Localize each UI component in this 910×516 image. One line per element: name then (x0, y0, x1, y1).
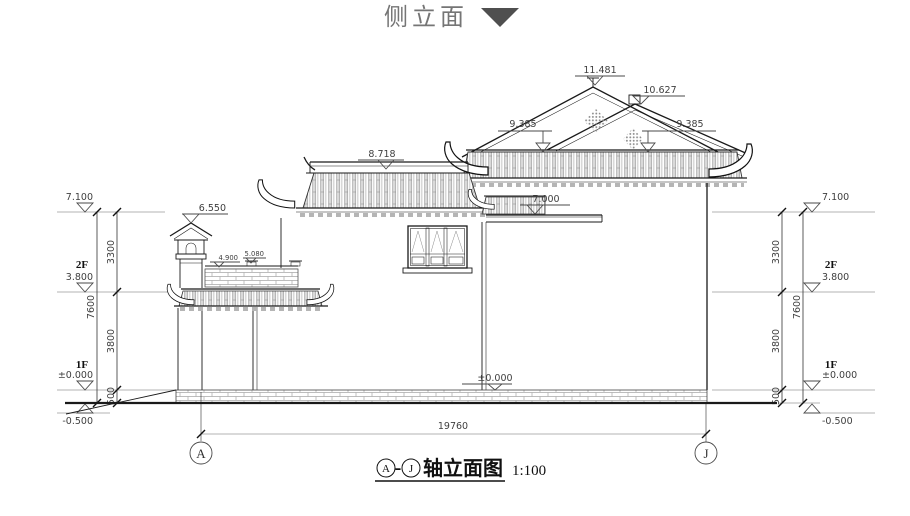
mark-post-cap: 5.080 (245, 250, 264, 258)
left-dimension-stack: 7.100 3.800 ±0.000 -0.500 2F 1F 7600 330… (57, 192, 176, 427)
main-roof-eave (445, 142, 753, 185)
mark-ridge-rear: 10.627 (643, 85, 676, 96)
left-elev-7100: 7.100 (66, 192, 93, 203)
left-floor1-label: 1F (76, 359, 89, 371)
mark-mid-roof: 7.000 (532, 194, 559, 205)
mark-ridge-main: 11.481 (583, 65, 616, 76)
right-dim-3800: 3800 (771, 329, 782, 353)
window-sill (403, 268, 472, 273)
page-title: 侧立面 (384, 3, 468, 31)
railing-brick-band (205, 269, 298, 287)
caption-label: 轴立面图 (423, 456, 503, 480)
left-dim-total: 7600 (86, 295, 97, 319)
left-elev-minus0500: -0.500 (62, 416, 93, 427)
mark-ground-center: ±0.000 (477, 373, 512, 384)
elevation-drawing-page: 侧立面 7.100 3.800 ±0.000 -0.500 2F 1F 7600… (0, 0, 910, 516)
caption-dash: - (395, 457, 402, 479)
drawing-caption: A - J 轴立面图 1:100 (375, 456, 546, 481)
right-elev-7100: 7.100 (822, 192, 849, 203)
right-elev-minus0500: -0.500 (822, 416, 853, 427)
mark-eave-left: 9.385 (509, 119, 536, 130)
window (403, 226, 472, 273)
balcony-roof-tiles (179, 291, 322, 306)
right-dim-3300: 3300 (771, 240, 782, 264)
elevation-drawing-canvas: 侧立面 7.100 3.800 ±0.000 -0.500 2F 1F 7600… (0, 0, 910, 516)
caption-scale: 1:100 (512, 463, 546, 479)
left-dim-3300: 3300 (106, 240, 117, 264)
right-elev-0000: ±0.000 (822, 370, 857, 381)
roof-annotations: 11.481 10.627 9.385 9.385 8.718 7.000 6.… (182, 65, 716, 390)
rear-gable-ornament (623, 128, 643, 150)
ground (65, 390, 777, 414)
right-floor2-label: 2F (825, 259, 838, 271)
axis-j-label: J (703, 446, 708, 461)
front-gable-roof (462, 78, 718, 157)
caption-axis-a: A (382, 463, 390, 475)
title-triangle-icon (481, 8, 519, 27)
right-elev-3800: 3.800 (822, 272, 849, 283)
left-roof-eave-horn (258, 180, 295, 208)
left-dim-3800: 3800 (106, 329, 117, 353)
mark-left-roof: 8.718 (368, 149, 395, 160)
plinth-brick-band (176, 390, 707, 403)
left-elev-3800: 3.800 (66, 272, 93, 283)
balcony (167, 261, 334, 309)
mark-tower-top: 6.550 (199, 203, 226, 214)
right-dim-total: 7600 (792, 295, 803, 319)
axis-a-label: A (196, 446, 206, 461)
left-floor2-label: 2F (76, 259, 89, 271)
total-width-dim: 19760 (438, 421, 468, 432)
mark-eave-right: 9.385 (676, 119, 703, 130)
mark-railing-top: 4.900 (219, 254, 238, 262)
caption-axis-j: J (409, 463, 414, 475)
right-dimension-stack: 7.100 3.800 ±0.000 -0.500 2F 1F 7600 330… (712, 192, 875, 427)
rear-gable-roof (547, 95, 750, 156)
right-floor1-label: 1F (825, 359, 838, 371)
left-elev-0000: ±0.000 (58, 370, 93, 381)
